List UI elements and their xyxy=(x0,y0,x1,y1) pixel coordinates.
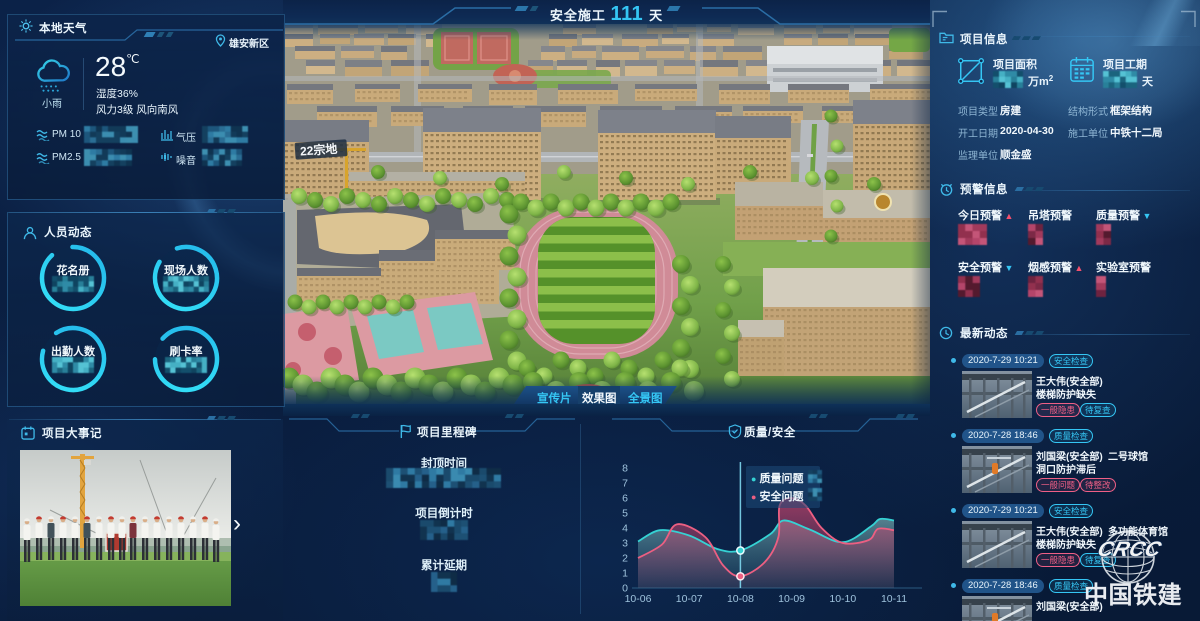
svg-text:3: 3 xyxy=(622,538,628,550)
svg-text:10-06: 10-06 xyxy=(625,593,652,605)
svg-text:7: 7 xyxy=(622,478,628,490)
svg-text:10-08: 10-08 xyxy=(727,593,754,605)
svg-text:10-10: 10-10 xyxy=(829,593,856,605)
svg-text:CRCC: CRCC xyxy=(1095,537,1164,561)
svg-text:10-07: 10-07 xyxy=(676,593,703,605)
svg-text:6: 6 xyxy=(622,493,628,505)
svg-text:5: 5 xyxy=(622,508,628,520)
svg-text:10-11: 10-11 xyxy=(881,593,907,605)
svg-text:8: 8 xyxy=(622,463,628,475)
svg-text:1: 1 xyxy=(622,568,628,580)
svg-text:中国铁建: 中国铁建 xyxy=(1084,582,1182,609)
svg-text:10-09: 10-09 xyxy=(778,593,805,605)
svg-text:2: 2 xyxy=(622,553,628,565)
svg-text:22宗地: 22宗地 xyxy=(300,141,338,159)
svg-text:4: 4 xyxy=(622,523,628,535)
